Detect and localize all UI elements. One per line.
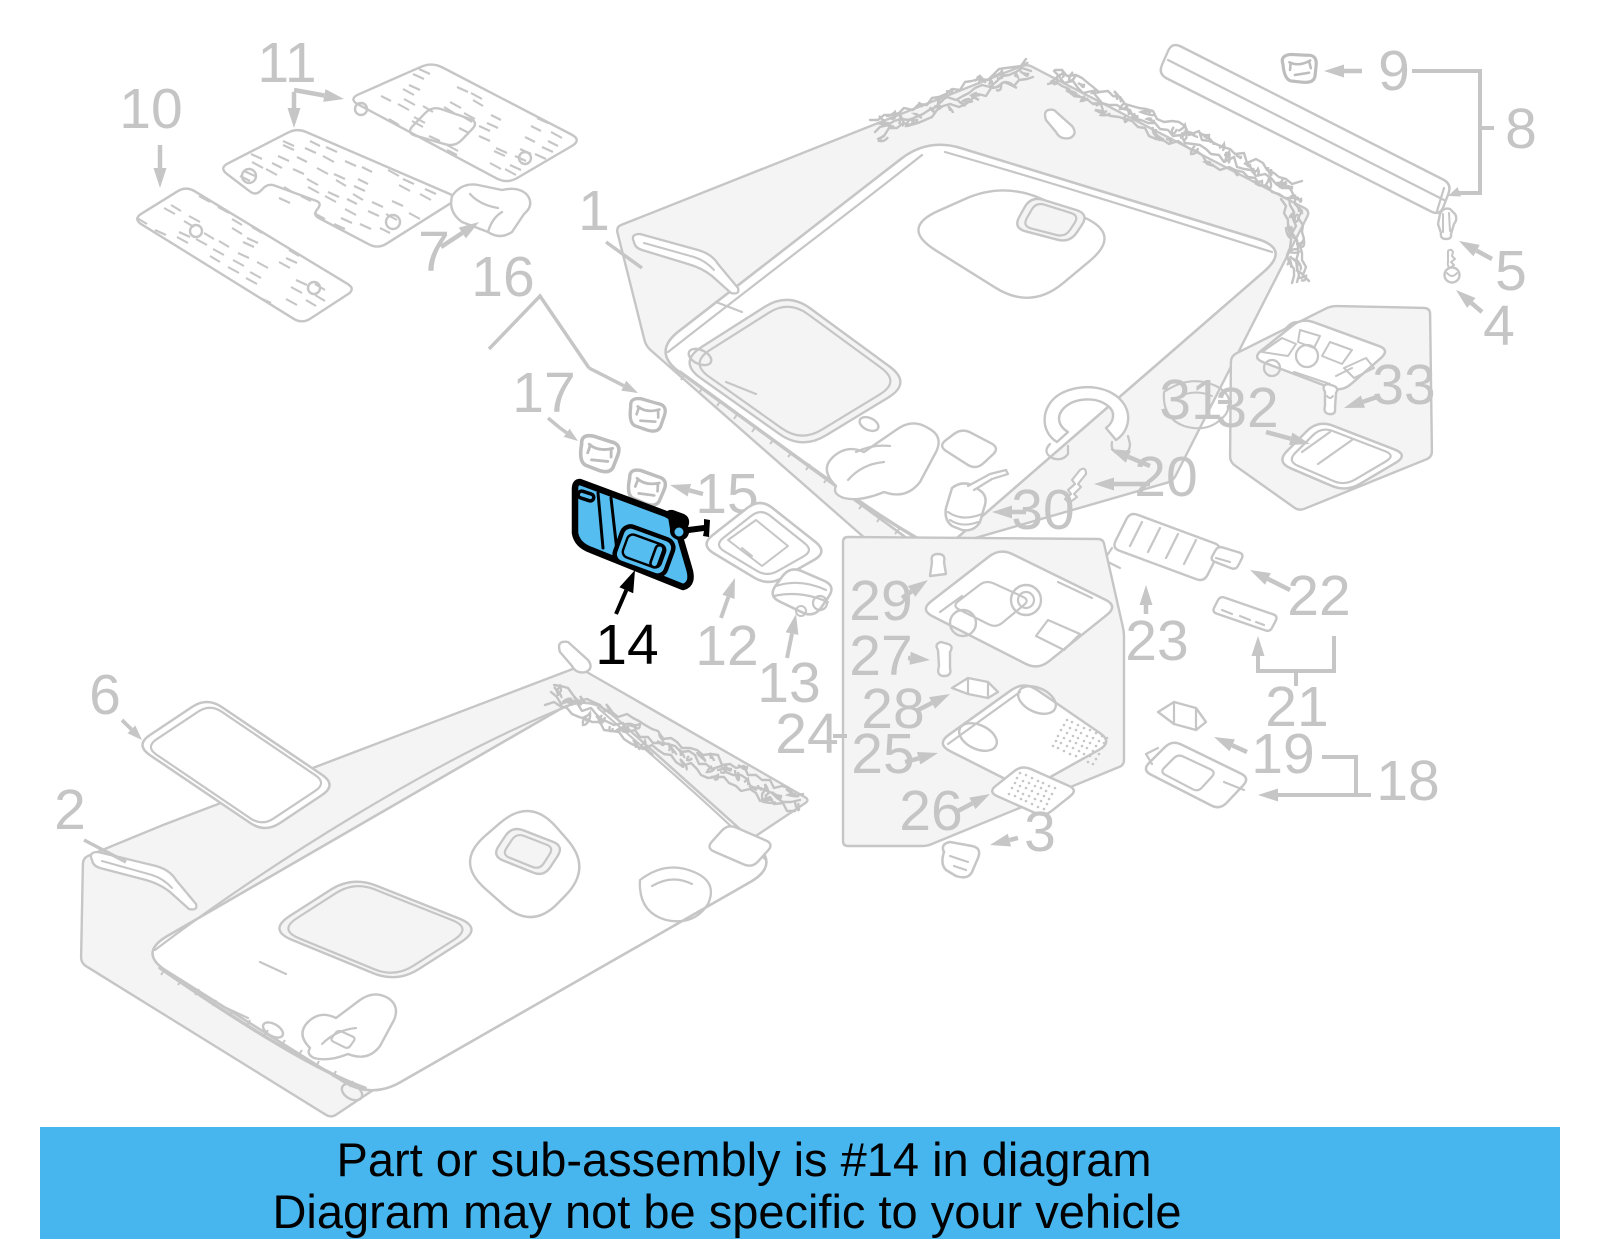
svg-text:12: 12: [695, 614, 758, 678]
svg-text:22: 22: [1287, 564, 1350, 628]
svg-text:32: 32: [1215, 376, 1278, 440]
svg-text:7: 7: [418, 220, 450, 284]
svg-text:16: 16: [471, 245, 534, 309]
svg-text:9: 9: [1378, 39, 1410, 103]
svg-text:26: 26: [899, 779, 962, 843]
svg-text:17: 17: [512, 361, 575, 425]
svg-text:13: 13: [757, 651, 820, 715]
svg-text:10: 10: [119, 77, 182, 141]
svg-text:6: 6: [89, 663, 121, 727]
svg-text:19: 19: [1251, 722, 1314, 786]
svg-text:33: 33: [1372, 353, 1435, 417]
svg-text:Diagram may not be specific to: Diagram may not be specific to your vehi…: [272, 1185, 1181, 1238]
svg-text:Part or sub-assembly is #14 in: Part or sub-assembly is #14 in diagram: [336, 1133, 1151, 1186]
svg-text:1: 1: [578, 179, 610, 243]
svg-text:4: 4: [1483, 294, 1515, 358]
svg-text:2: 2: [54, 778, 86, 842]
svg-text:31: 31: [1159, 368, 1222, 432]
svg-text:20: 20: [1134, 445, 1197, 509]
svg-text:3: 3: [1024, 800, 1056, 864]
svg-text:14: 14: [595, 613, 658, 677]
svg-text:8: 8: [1505, 97, 1537, 161]
svg-text:11: 11: [257, 31, 316, 95]
svg-text:25: 25: [851, 722, 914, 786]
svg-text:23: 23: [1125, 609, 1188, 673]
svg-text:18: 18: [1376, 749, 1439, 813]
